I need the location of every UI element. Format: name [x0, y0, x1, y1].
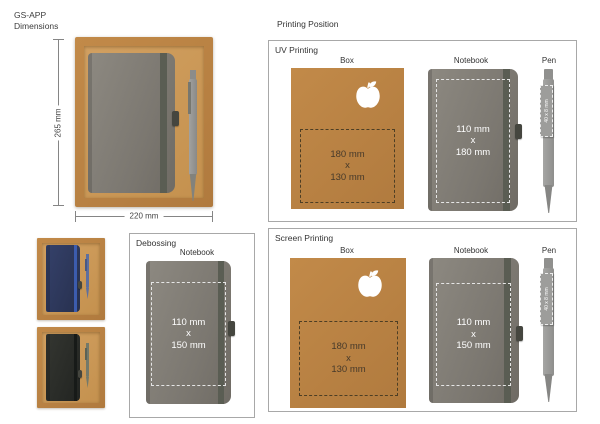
spec-sheet: GS-APP Dimensions 265 mm 220 mm	[0, 0, 600, 424]
screen-printing-title: Screen Printing	[275, 233, 333, 243]
dimension-cap	[212, 211, 213, 222]
pen-tip	[86, 288, 89, 299]
screen-printing-panel: Screen Printing Box 180 mm x 130 mm Note…	[268, 228, 577, 412]
pen-label: Pen	[529, 246, 569, 255]
elastic-band	[74, 334, 77, 401]
variant-thumbnail-blue	[37, 238, 105, 320]
size-line: 150 mm	[171, 340, 205, 352]
pen-print-area-size: 40 x 8 mm	[544, 287, 550, 310]
size-line: x	[345, 160, 350, 172]
pen-clip-print-area: 40 x 8 mm	[540, 85, 553, 137]
size-line: x	[471, 135, 476, 147]
box-image: 180 mm x 130 mm	[291, 68, 404, 209]
height-dimension-label: 265 mm	[53, 105, 64, 140]
uv-printing-panel: UV Printing Box 180 mm x 130 mm Notebook	[268, 40, 577, 222]
pen-tip	[86, 377, 89, 388]
pen-loop	[515, 124, 522, 139]
pen-image	[85, 343, 90, 389]
pen-clip	[85, 348, 87, 360]
size-line: 150 mm	[456, 340, 490, 352]
print-area-outline: 180 mm x 130 mm	[299, 321, 398, 396]
size-line: 180 mm	[331, 341, 365, 353]
size-line: 180 mm	[456, 147, 490, 159]
pen-print-area-size: 40 x 8 mm	[544, 99, 550, 122]
pen-clip	[188, 82, 191, 114]
pen-tip	[543, 185, 554, 213]
notebook-image	[46, 334, 80, 401]
pen-tip	[189, 174, 197, 201]
product-title: GS-APP Dimensions	[14, 10, 58, 32]
pen-loop	[78, 370, 82, 378]
size-line: 130 mm	[330, 172, 364, 184]
size-line: 110 mm	[456, 124, 490, 136]
print-area-size: 110 mm x 180 mm	[437, 80, 509, 202]
size-line: x	[186, 328, 191, 340]
elastic-band	[74, 245, 77, 312]
box-image: 180 mm x 130 mm	[290, 258, 406, 408]
size-line: 110 mm	[172, 317, 206, 329]
size-line: x	[471, 329, 476, 341]
notebook-label: Notebook	[441, 246, 501, 255]
height-dimension: 265 mm	[52, 39, 64, 206]
size-line: x	[346, 353, 351, 365]
pen-image	[85, 254, 90, 300]
notebook-label: Notebook	[441, 56, 501, 65]
print-area-size: 180 mm x 130 mm	[301, 130, 394, 202]
pen-image: 40 x 8 mm	[539, 69, 559, 214]
product-code: GS-APP	[14, 10, 58, 21]
box-label: Box	[327, 56, 367, 65]
print-area-outline: 110 mm x 150 mm	[436, 283, 511, 386]
print-area-outline: 180 mm x 130 mm	[300, 129, 395, 203]
pen-tip	[543, 374, 554, 402]
size-line: 110 mm	[457, 317, 491, 329]
printing-position-title: Printing Position	[277, 19, 338, 29]
notebook-label: Notebook	[167, 248, 227, 257]
width-dimension: 220 mm	[75, 210, 213, 222]
notebook-image: 110 mm x 150 mm	[146, 261, 231, 404]
box-label: Box	[327, 246, 367, 255]
notebook-image	[88, 53, 175, 193]
pen-clip-print-area: 40 x 8 mm	[540, 273, 553, 325]
pen-loop	[78, 281, 82, 289]
pen-image	[186, 70, 200, 202]
pen-image: 40 x 8 mm	[539, 258, 559, 401]
variant-thumbnail-black	[37, 327, 105, 408]
pen-clip	[85, 259, 87, 271]
gift-set-photo	[75, 37, 213, 207]
notebook-image: 110 mm x 150 mm	[429, 258, 519, 403]
pen-loop	[172, 111, 179, 126]
pen-loop	[516, 326, 523, 341]
pen-label: Pen	[529, 56, 569, 65]
size-line: 180 mm	[330, 149, 364, 161]
print-area-size: 110 mm x 150 mm	[152, 283, 225, 385]
dimension-cap	[53, 205, 64, 206]
print-area-outline: 110 mm x 180 mm	[436, 79, 510, 203]
debossing-panel: Debossing Notebook 110 mm x 150 mm	[129, 233, 255, 418]
product-subtitle: Dimensions	[14, 21, 58, 32]
apple-icon	[357, 269, 383, 299]
debossing-title: Debossing	[136, 238, 176, 248]
print-area-outline: 110 mm x 150 mm	[151, 282, 226, 386]
print-area-size: 110 mm x 150 mm	[437, 284, 510, 385]
size-line: 130 mm	[331, 364, 365, 376]
width-dimension-label: 220 mm	[125, 212, 164, 221]
elastic-band	[160, 53, 167, 193]
print-area-size: 180 mm x 130 mm	[300, 322, 397, 395]
apple-icon	[355, 80, 381, 110]
notebook-image	[46, 245, 80, 312]
pen-loop	[228, 321, 235, 336]
uv-printing-title: UV Printing	[275, 45, 318, 55]
notebook-image: 110 mm x 180 mm	[428, 69, 518, 211]
